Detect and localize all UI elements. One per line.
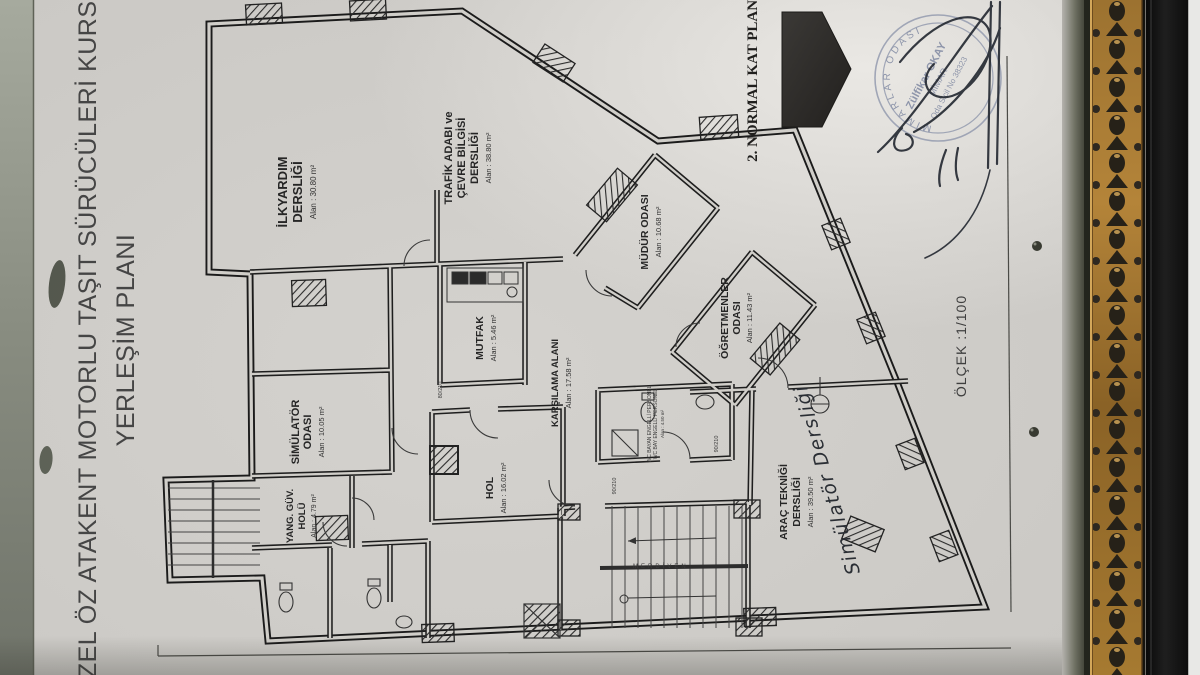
photo-left-edge: [0, 0, 34, 675]
framed-floor-plan-photo: İLKYARDIM DERSLİĞİ Alan : 30.80 m² TRAFİ…: [0, 0, 1200, 675]
room-label-wc: WC BAYAN ENGELLİ PERSONEL WC BAY ENGELLİ…: [646, 385, 665, 462]
door-arc: [352, 498, 374, 520]
shower-icon: [612, 430, 638, 456]
paper-hole: [38, 445, 53, 474]
room-label-mutfak: MUTFAK Alan : 5.46 m²: [474, 314, 498, 361]
room-name: DERSLİĞİ: [468, 132, 481, 184]
elevator-shaft: [524, 604, 560, 638]
room-label-mudur: MÜDÜR ODASI Alan : 10.68 m²: [638, 194, 663, 269]
frame-nail: [1029, 427, 1039, 437]
room-name: ÇEVRE BİLGİSİ: [455, 118, 468, 199]
room-name: YANG. GÜV.: [285, 489, 296, 543]
stairs-fire-escape: [168, 480, 260, 578]
room-area: Alan : 16.02 m²: [499, 462, 508, 513]
room-label-simulator: SİMÜLATÖR ODASI Alan : 10.05 m²: [289, 400, 326, 465]
title-block: ÖZEL ÖZ ATAKENT MOTORLU TAŞIT SÜRÜCÜLERİ…: [73, 0, 140, 675]
room-area: Alan : 5.46 m²: [489, 314, 498, 361]
room-name: DERSLİĞİ: [790, 477, 803, 527]
room-area: Alan : 10.05 m²: [317, 406, 326, 457]
plan-heading-marker: [782, 12, 851, 127]
toilet-icon: [279, 583, 293, 612]
wall-behind-frame: [1188, 0, 1200, 675]
room-name: ÖĞRETMENLER: [718, 277, 731, 359]
sink-icon: [396, 616, 412, 628]
page-title-line1: ÖZEL ÖZ ATAKENT MOTORLU TAŞIT SÜRÜCÜLERİ…: [73, 0, 102, 675]
frame-nails: [1029, 241, 1042, 437]
frame-black-strip: [1146, 0, 1188, 675]
room-area: Alan : 4.50 m²: [660, 409, 665, 438]
sink-icon: [507, 287, 517, 297]
stove-icon: [470, 272, 486, 284]
room-label-hol: HOL Alan : 16.02 m²: [484, 462, 508, 513]
door-dimension: 90/210: [612, 478, 618, 495]
room-name: HOL: [484, 476, 496, 499]
scale-label-block: ÖLÇEK :1/100: [952, 295, 969, 397]
picture-frame: [1062, 0, 1200, 675]
room-name: ARAÇ TEKNİĞİ: [777, 464, 790, 540]
room-name: ODASI: [731, 301, 743, 334]
door-arc: [392, 428, 418, 454]
sink-icon: [696, 395, 714, 409]
room-name: MÜDÜR ODASI: [638, 194, 651, 269]
room-label-ilkyardim: İLKYARDIM DERSLİĞİ Alan : 30.80 m²: [275, 156, 318, 227]
plan-heading: 2. NORMAL KAT PLANI: [745, 0, 761, 162]
door-dimension: 80/210: [438, 382, 444, 399]
room-label-arac: ARAÇ TEKNİĞİ DERSLİĞİ Alan : 39.50 m²: [777, 464, 815, 540]
room-area: Alan : 17.58 m²: [564, 357, 573, 408]
room-label-trafik: TRAFİK ADABI ve ÇEVRE BİLGİSİ DERSLİĞİ A…: [442, 111, 493, 204]
room-label-ogretmenler: ÖĞRETMENLER ODASI Alan : 11.43 m²: [718, 277, 754, 359]
room-name: KARŞILAMA ALANI: [550, 339, 561, 427]
room-name: WC BAY ENGELLİ PERSONEL: [652, 389, 659, 460]
paper-marks: [38, 259, 68, 474]
room-name: HOLÜ: [297, 502, 308, 529]
scale-label: ÖLÇEK :1/100: [952, 295, 969, 397]
room-name: ODASI: [302, 415, 314, 450]
frame-nail: [1032, 241, 1042, 251]
room-name: WC BAYAN ENGELLİ PERSONEL: [646, 385, 653, 462]
paper-shadow: [0, 636, 1062, 675]
room-area: Alan : 39.50 m²: [806, 476, 815, 527]
page-title-line2: YERLEŞİM PLANI: [111, 234, 140, 447]
room-area: Alan : 11.43 m²: [745, 292, 754, 343]
floor-plan-drawing: İLKYARDIM DERSLİĞİ Alan : 30.80 m² TRAFİ…: [0, 0, 1200, 675]
room-area: Alan : 10.68 m²: [654, 206, 663, 257]
stair-label: MERDİVEN: [633, 563, 689, 570]
door-dimension: 90/210: [714, 436, 720, 453]
paper-hole: [46, 259, 68, 309]
room-name: İLKYARDIM: [275, 156, 290, 227]
room-label-yangin: YANG. GÜV. HOLÜ Alan : 4.79 m²: [285, 489, 318, 543]
room-name: TRAFİK ADABI ve: [442, 111, 455, 204]
room-area: Alan : 4.79 m²: [311, 494, 318, 538]
room-name: DERSLİĞİ: [290, 161, 305, 222]
room-area: Alan : 38.80 m²: [484, 132, 493, 183]
kitchen-counter: [447, 268, 523, 302]
toilet-icon: [367, 579, 381, 608]
door-arc: [663, 432, 690, 459]
room-name: SİMÜLATÖR: [289, 400, 302, 465]
door-arc: [470, 410, 498, 438]
room-area: Alan : 30.80 m²: [309, 165, 318, 220]
frame-gold-ornament: [1090, 0, 1144, 675]
stove-icon: [452, 272, 468, 284]
room-name: MUTFAK: [474, 316, 486, 360]
signature: [878, 2, 1000, 258]
